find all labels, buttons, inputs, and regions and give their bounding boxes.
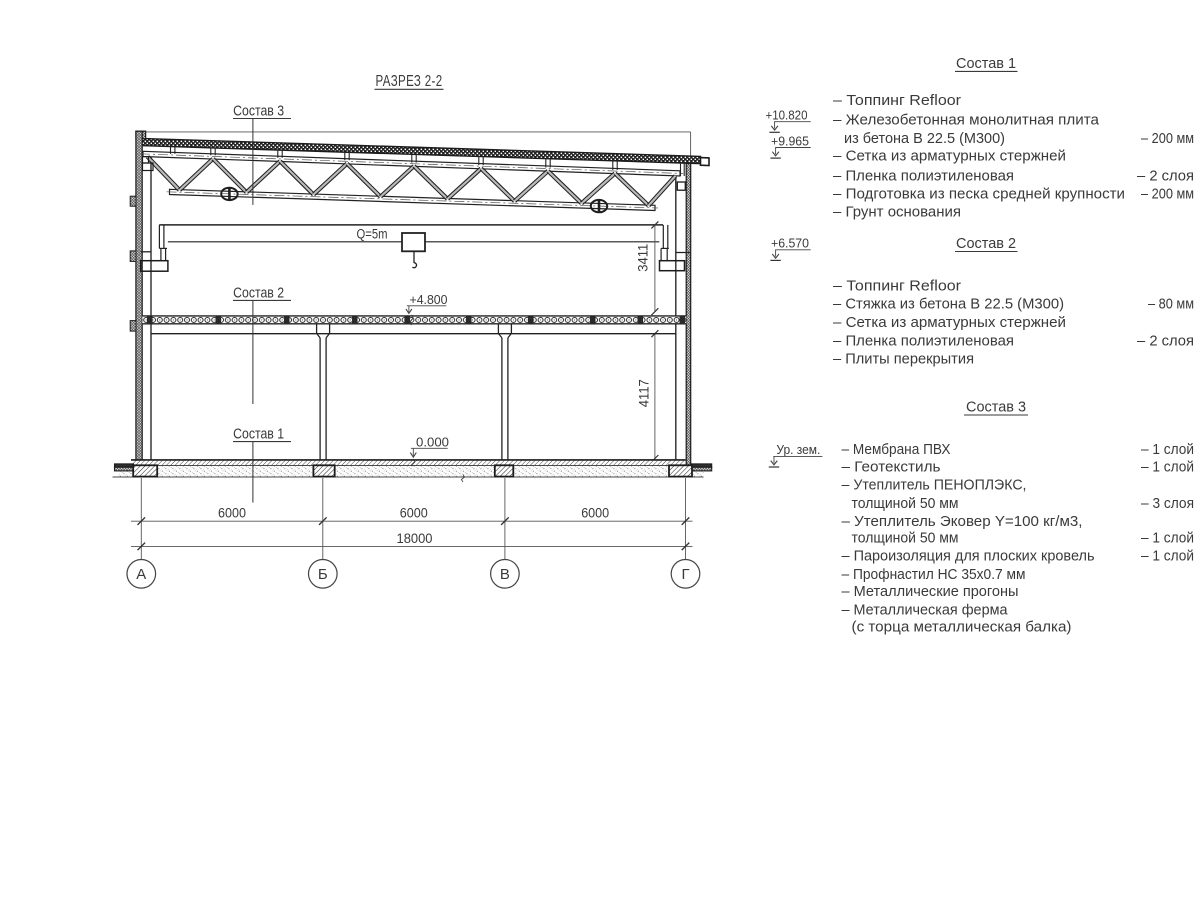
svg-text:А: А [136, 566, 146, 583]
svg-text:– Мембрана ПВХ: – Мембрана ПВХ [842, 441, 951, 458]
svg-text:– 80 мм: – 80 мм [1148, 296, 1194, 313]
svg-text:6000: 6000 [218, 505, 246, 521]
svg-text:– 2 слоя: – 2 слоя [1137, 167, 1194, 184]
svg-text:– Утеплитель Эковер Y=100 кг/м: – Утеплитель Эковер Y=100 кг/м3, [842, 513, 1083, 530]
svg-text:– Подготовка из песка средней: – Подготовка из песка средней крупности [833, 186, 1125, 203]
svg-text:3411: 3411 [636, 244, 651, 272]
svg-text:+10.820: +10.820 [766, 108, 808, 123]
svg-text:РАЗРЕЗ 2-2: РАЗРЕЗ 2-2 [376, 73, 443, 90]
svg-text:+9.965: +9.965 [771, 133, 809, 148]
svg-text:– Стяжка из бетона В 22.5 (М30: – Стяжка из бетона В 22.5 (М300) [833, 296, 1064, 313]
svg-text:– Металлическая ферма: – Металлическая ферма [842, 601, 1009, 618]
svg-text:Состав 2: Состав 2 [956, 235, 1016, 252]
svg-text:– 1 слой: – 1 слой [1141, 441, 1194, 458]
svg-text:Состав 3: Состав 3 [233, 104, 284, 120]
svg-text:Состав 1: Состав 1 [233, 427, 284, 443]
svg-text:– Пленка полиэтиленовая: – Пленка полиэтиленовая [833, 167, 1014, 184]
svg-text:+6.570: +6.570 [771, 236, 809, 251]
svg-text:– Плиты перекрытия: – Плиты перекрытия [833, 351, 974, 368]
svg-text:– 2 слоя: – 2 слоя [1137, 332, 1194, 349]
svg-text:– Пароизоляция для плоских кро: – Пароизоляция для плоских кровель [842, 548, 1095, 565]
svg-text:толщиной 50 мм: толщиной 50 мм [852, 495, 959, 512]
svg-text:– 1 слой: – 1 слой [1141, 459, 1194, 476]
svg-text:– 200 мм: – 200 мм [1141, 130, 1194, 147]
svg-text:Состав 3: Состав 3 [966, 399, 1026, 416]
svg-text:Состав 2: Состав 2 [233, 286, 284, 302]
svg-text:4117: 4117 [637, 379, 652, 407]
svg-text:– Металлические прогоны: – Металлические прогоны [842, 583, 1019, 600]
svg-text:18000: 18000 [397, 530, 433, 546]
svg-text:Состав 1: Состав 1 [956, 55, 1016, 72]
svg-text:6000: 6000 [400, 505, 428, 521]
svg-text:(с торца металлическая балка): (с торца металлическая балка) [852, 619, 1072, 636]
svg-text:– Профнастил НС 35х0.7 мм: – Профнастил НС 35х0.7 мм [842, 566, 1026, 583]
svg-text:– Топпинг Refloor: – Топпинг Refloor [833, 92, 961, 109]
svg-text:В: В [500, 566, 510, 583]
svg-text:Г: Г [681, 566, 689, 583]
svg-text:– 1 слой: – 1 слой [1141, 548, 1194, 565]
svg-text:– Сетка из арматурных стержней: – Сетка из арматурных стержней [833, 314, 1066, 331]
svg-text:– Железобетонная монолитная п: – Железобетонная монолитная плита [833, 112, 1100, 129]
svg-text:0.000: 0.000 [416, 434, 449, 449]
svg-text:Ур. зем.: Ур. зем. [776, 442, 820, 457]
svg-text:– 3 слоя: – 3 слоя [1141, 495, 1194, 512]
svg-text:– 200 мм: – 200 мм [1141, 186, 1194, 203]
svg-text:– Утеплитель ПЕНОПЛЭКС,: – Утеплитель ПЕНОПЛЭКС, [842, 477, 1027, 494]
svg-text:толщиной 50 мм: толщиной 50 мм [852, 529, 959, 546]
svg-text:Б: Б [318, 566, 328, 583]
svg-text:– 1 слой: – 1 слой [1141, 529, 1194, 546]
svg-text:из бетона В 22.5 (М300): из бетона В 22.5 (М300) [844, 130, 1005, 147]
svg-text:+4.800: +4.800 [410, 292, 448, 307]
svg-text:– Сетка из арматурных стержней: – Сетка из арматурных стержней [833, 147, 1066, 164]
svg-text:Q=5m: Q=5m [357, 226, 388, 241]
svg-text:– Топпинг Refloor: – Топпинг Refloor [833, 278, 961, 295]
svg-text:– Пленка полиэтиленовая: – Пленка полиэтиленовая [833, 332, 1014, 349]
svg-text:– Грунт основания: – Грунт основания [833, 204, 961, 221]
svg-text:– Геотекстиль: – Геотекстиль [842, 459, 941, 476]
svg-text:6000: 6000 [581, 505, 609, 521]
